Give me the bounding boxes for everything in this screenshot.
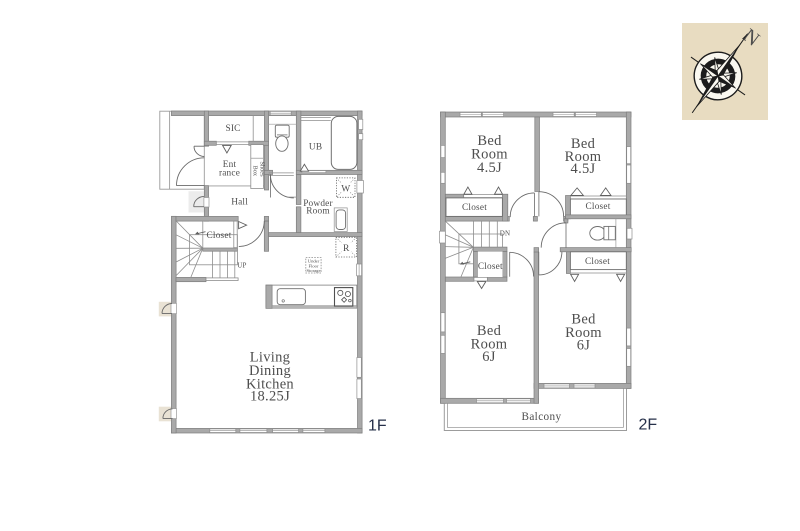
svg-text:DN: DN	[500, 230, 511, 238]
svg-text:Box: Box	[252, 166, 259, 177]
svg-text:Closet: Closet	[586, 202, 611, 212]
svg-text:1F: 1F	[368, 417, 387, 434]
svg-text:UB: UB	[309, 143, 322, 153]
svg-text:R: R	[343, 244, 350, 254]
svg-text:Closet: Closet	[462, 203, 487, 213]
svg-text:6J: 6J	[577, 338, 591, 354]
svg-text:2F: 2F	[639, 417, 658, 434]
svg-text:UP: UP	[237, 261, 246, 269]
svg-text:Closet: Closet	[585, 257, 610, 267]
svg-text:4.5J: 4.5J	[571, 161, 596, 177]
svg-text:W: W	[341, 184, 350, 194]
svg-text:6J: 6J	[482, 349, 496, 365]
svg-text:Room: Room	[306, 207, 330, 217]
svg-text:Closet: Closet	[207, 231, 232, 241]
svg-text:Hall: Hall	[231, 198, 248, 208]
svg-text:Balcony: Balcony	[521, 411, 561, 423]
svg-text:rance: rance	[219, 169, 240, 179]
svg-text:4.5J: 4.5J	[477, 160, 502, 176]
svg-text:Closet: Closet	[478, 262, 503, 272]
svg-text:SIC: SIC	[225, 124, 240, 134]
svg-text:Storage: Storage	[306, 268, 320, 273]
svg-text:18.25J: 18.25J	[250, 389, 290, 405]
